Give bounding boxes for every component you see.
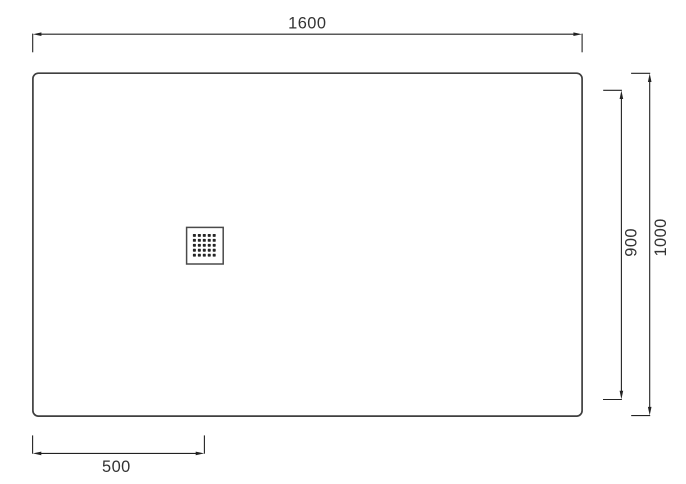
svg-text:900: 900 bbox=[623, 228, 641, 257]
svg-text:1000: 1000 bbox=[652, 218, 670, 256]
svg-text:1600: 1600 bbox=[288, 15, 326, 33]
svg-text:500: 500 bbox=[102, 458, 131, 476]
